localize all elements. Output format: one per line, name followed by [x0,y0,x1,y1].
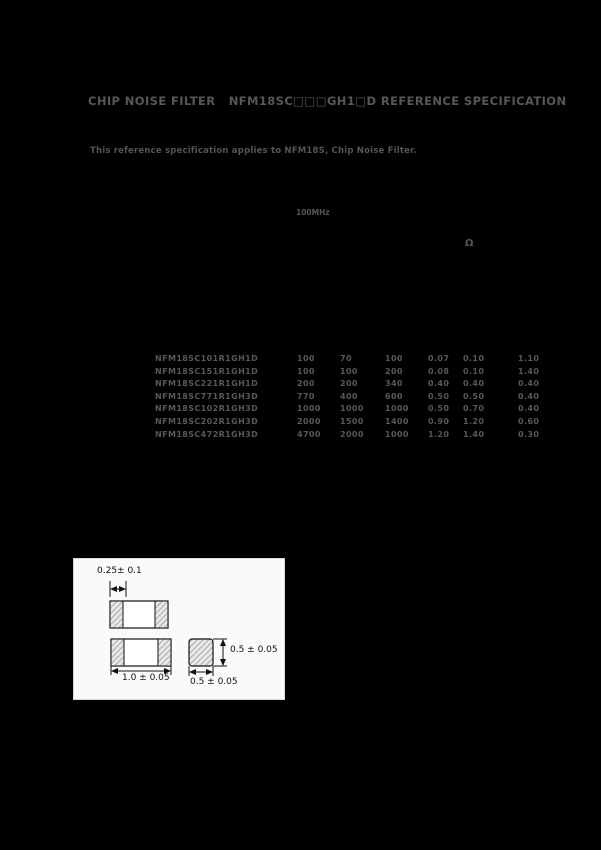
table-cell: 0.50 [428,403,463,416]
table-cell: 0.70 [463,403,518,416]
table-cell: 70 [340,353,385,366]
table-row: NFM18SC472R1GH3D 4700 2000 1000 1.20 1.4… [155,429,558,442]
table-cell: 200 [340,378,385,391]
table-cell: 1000 [340,403,385,416]
page-title: CHIP NOISE FILTER NFM18SC□□□GH1□D REFERE… [88,94,567,108]
width-label: 0.5 ± 0.05 [190,677,238,687]
length-label: 1.0 ± 0.05 [122,673,170,683]
table-cell: 0.50 [463,391,518,404]
table-cell: 100 [385,353,428,366]
table-cell: 2000 [297,416,340,429]
frequency-label: 100MHz [296,208,330,217]
table-cell: 1000 [297,403,340,416]
table-cell: 0.90 [428,416,463,429]
table-cell: 0.50 [428,391,463,404]
part-number: NFM18SC221R1GH1D [155,378,297,391]
table-cell: 1.40 [518,366,558,379]
table-cell: 1000 [385,403,428,416]
intro-text: This reference specification applies to … [90,146,417,156]
chip-side-view [111,639,171,666]
table-cell: 2000 [340,429,385,442]
part-number: NFM18SC102R1GH3D [155,403,297,416]
part-number: NFM18SC472R1GH3D [155,429,297,442]
table-cell: 0.08 [428,366,463,379]
table-cell: 0.10 [463,366,518,379]
table-cell: 0.10 [463,353,518,366]
table-cell: 1000 [385,429,428,442]
table-row: NFM18SC101R1GH1D 100 70 100 0.07 0.10 1.… [155,353,558,366]
parts-table: NFM18SC101R1GH1D 100 70 100 0.07 0.10 1.… [155,353,558,441]
chip-top-view [110,601,168,628]
part-number: NFM18SC771R1GH3D [155,391,297,404]
part-number: NFM18SC202R1GH3D [155,416,297,429]
terminal-width-label: 0.25± 0.1 [97,566,142,576]
table-cell: 1.20 [463,416,518,429]
table-cell: 340 [385,378,428,391]
datasheet-page: CHIP NOISE FILTER NFM18SC□□□GH1□D REFERE… [0,0,601,850]
table-cell: 1400 [385,416,428,429]
table-cell: 200 [297,378,340,391]
table-cell: 200 [385,366,428,379]
part-number: NFM18SC101R1GH1D [155,353,297,366]
table-row: NFM18SC771R1GH3D 770 400 600 0.50 0.50 0… [155,391,558,404]
dimension-diagram: 0.25± 0.1 1.0 ± 0.05 0.5 ± 0.05 0.5 ± 0.… [73,558,285,700]
chip-dimension-drawing [74,559,284,699]
ohm-symbol: Ω [465,238,474,249]
table-cell: 770 [297,391,340,404]
table-cell: 0.30 [518,429,558,442]
table-cell: 1.10 [518,353,558,366]
table-cell: 0.60 [518,416,558,429]
table-row: NFM18SC102R1GH3D 1000 1000 1000 0.50 0.7… [155,403,558,416]
table-cell: 4700 [297,429,340,442]
table-cell: 0.40 [518,403,558,416]
table-cell: 600 [385,391,428,404]
table-cell: 0.40 [428,378,463,391]
table-cell: 0.07 [428,353,463,366]
table-row: NFM18SC151R1GH1D 100 100 200 0.08 0.10 1… [155,366,558,379]
table-cell: 1500 [340,416,385,429]
table-cell: 400 [340,391,385,404]
table-cell: 100 [297,366,340,379]
part-number: NFM18SC151R1GH1D [155,366,297,379]
table-cell: 0.40 [518,378,558,391]
table-cell: 1.40 [463,429,518,442]
table-cell: 0.40 [463,378,518,391]
chip-end-view [189,639,213,666]
table-row: NFM18SC221R1GH1D 200 200 340 0.40 0.40 0… [155,378,558,391]
table-row: NFM18SC202R1GH3D 2000 1500 1400 0.90 1.2… [155,416,558,429]
table-cell: 1.20 [428,429,463,442]
table-cell: 0.40 [518,391,558,404]
height-label: 0.5 ± 0.05 [230,645,278,655]
table-cell: 100 [297,353,340,366]
table-cell: 100 [340,366,385,379]
